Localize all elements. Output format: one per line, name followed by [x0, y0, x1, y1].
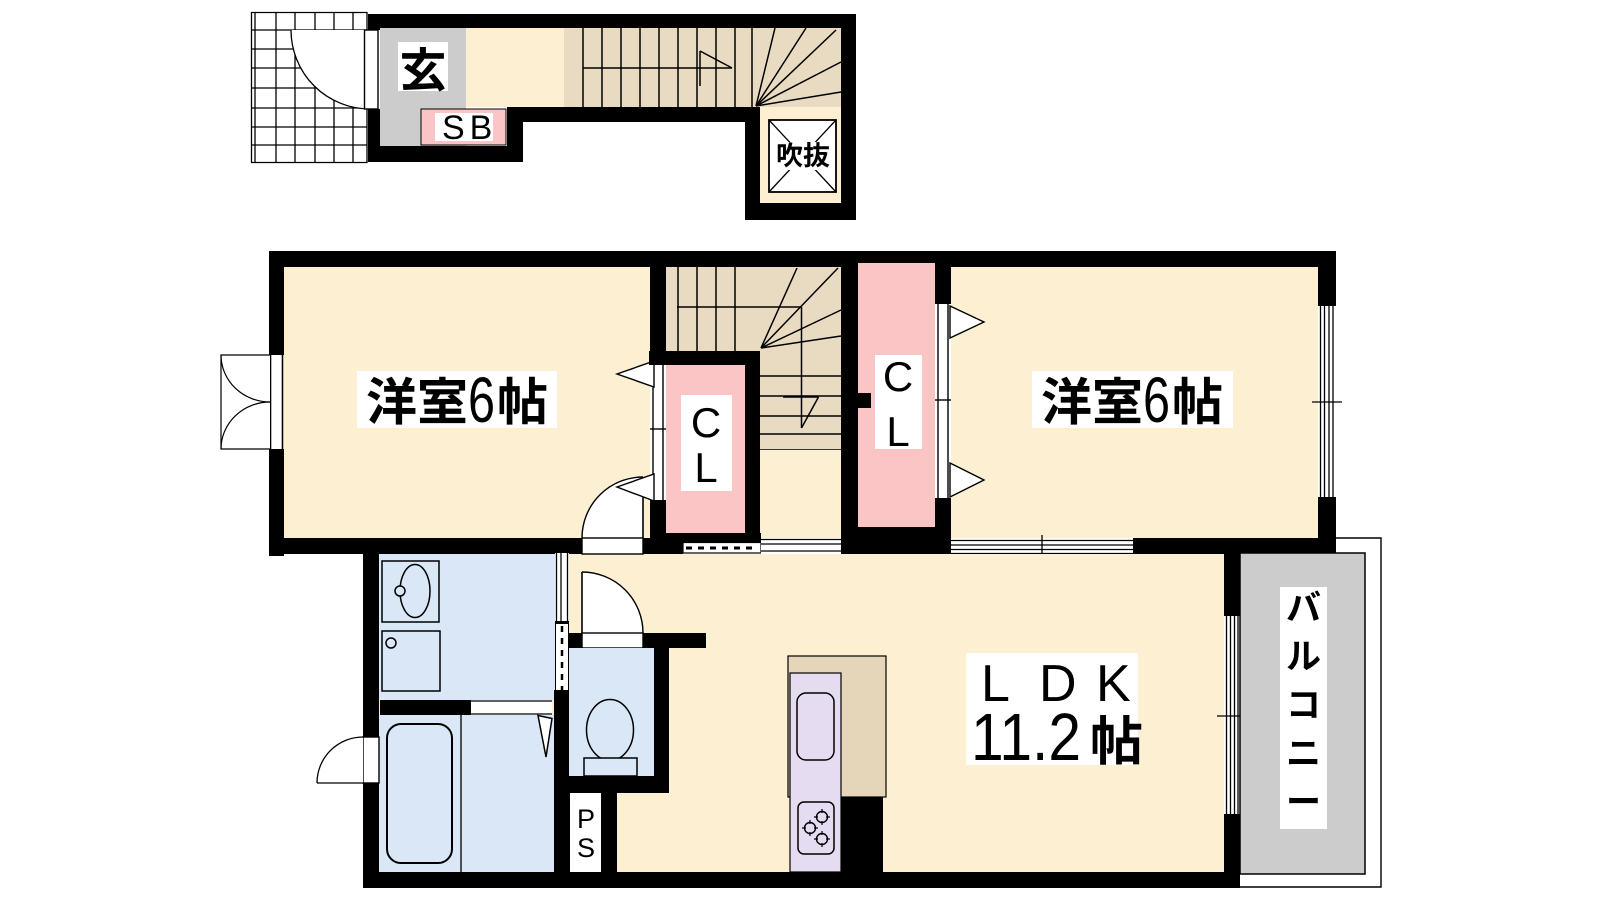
- svg-text:6: 6: [1143, 364, 1170, 436]
- svg-text:C: C: [883, 353, 913, 400]
- svg-text:SB: SB: [442, 109, 497, 147]
- svg-text:P: P: [577, 804, 595, 834]
- svg-text:L: L: [886, 408, 909, 455]
- svg-text:C: C: [691, 399, 721, 446]
- svg-text:6: 6: [468, 364, 495, 436]
- svg-text:L: L: [694, 444, 717, 491]
- svg-text:11.2: 11.2: [971, 700, 1081, 775]
- svg-text:S: S: [577, 833, 595, 863]
- svg-text:K: K: [1096, 655, 1131, 713]
